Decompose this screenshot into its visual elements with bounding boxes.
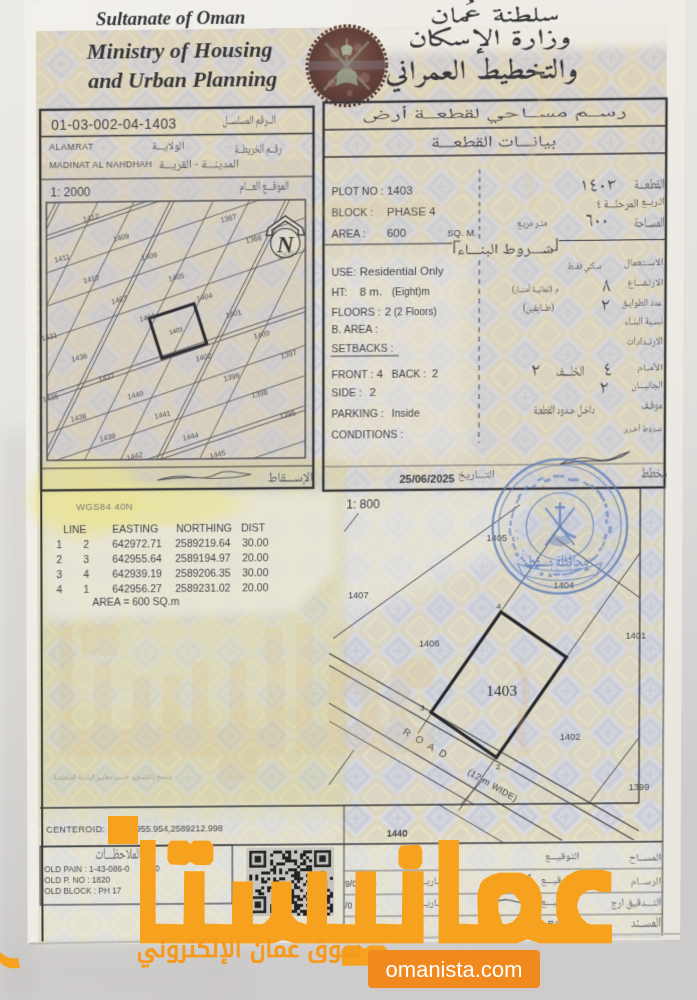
svg-text:omanista.com: omanista.com (386, 957, 523, 982)
